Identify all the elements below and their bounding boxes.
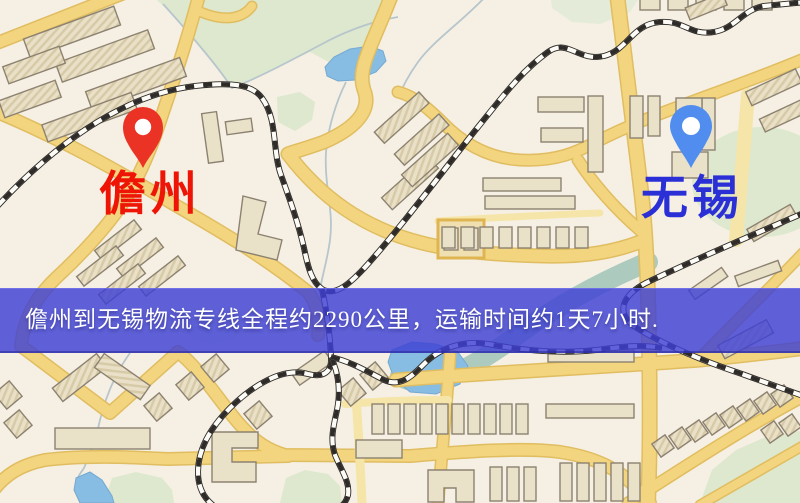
- origin-pin-hole: [135, 119, 151, 135]
- map-image: [0, 0, 800, 503]
- logistics-route-map: 儋州 无锡 儋州到无锡物流专线全程约2290公里，运输时间约1天7小时.: [0, 0, 800, 503]
- route-info-banner: 儋州到无锡物流专线全程约2290公里，运输时间约1天7小时.: [0, 288, 800, 353]
- route-info-text: 儋州到无锡物流专线全程约2290公里，运输时间约1天7小时.: [0, 289, 800, 351]
- origin-city-label: 儋州: [99, 172, 201, 219]
- destination-city-label: 无锡: [641, 176, 743, 223]
- destination-pin-hole: [682, 117, 700, 135]
